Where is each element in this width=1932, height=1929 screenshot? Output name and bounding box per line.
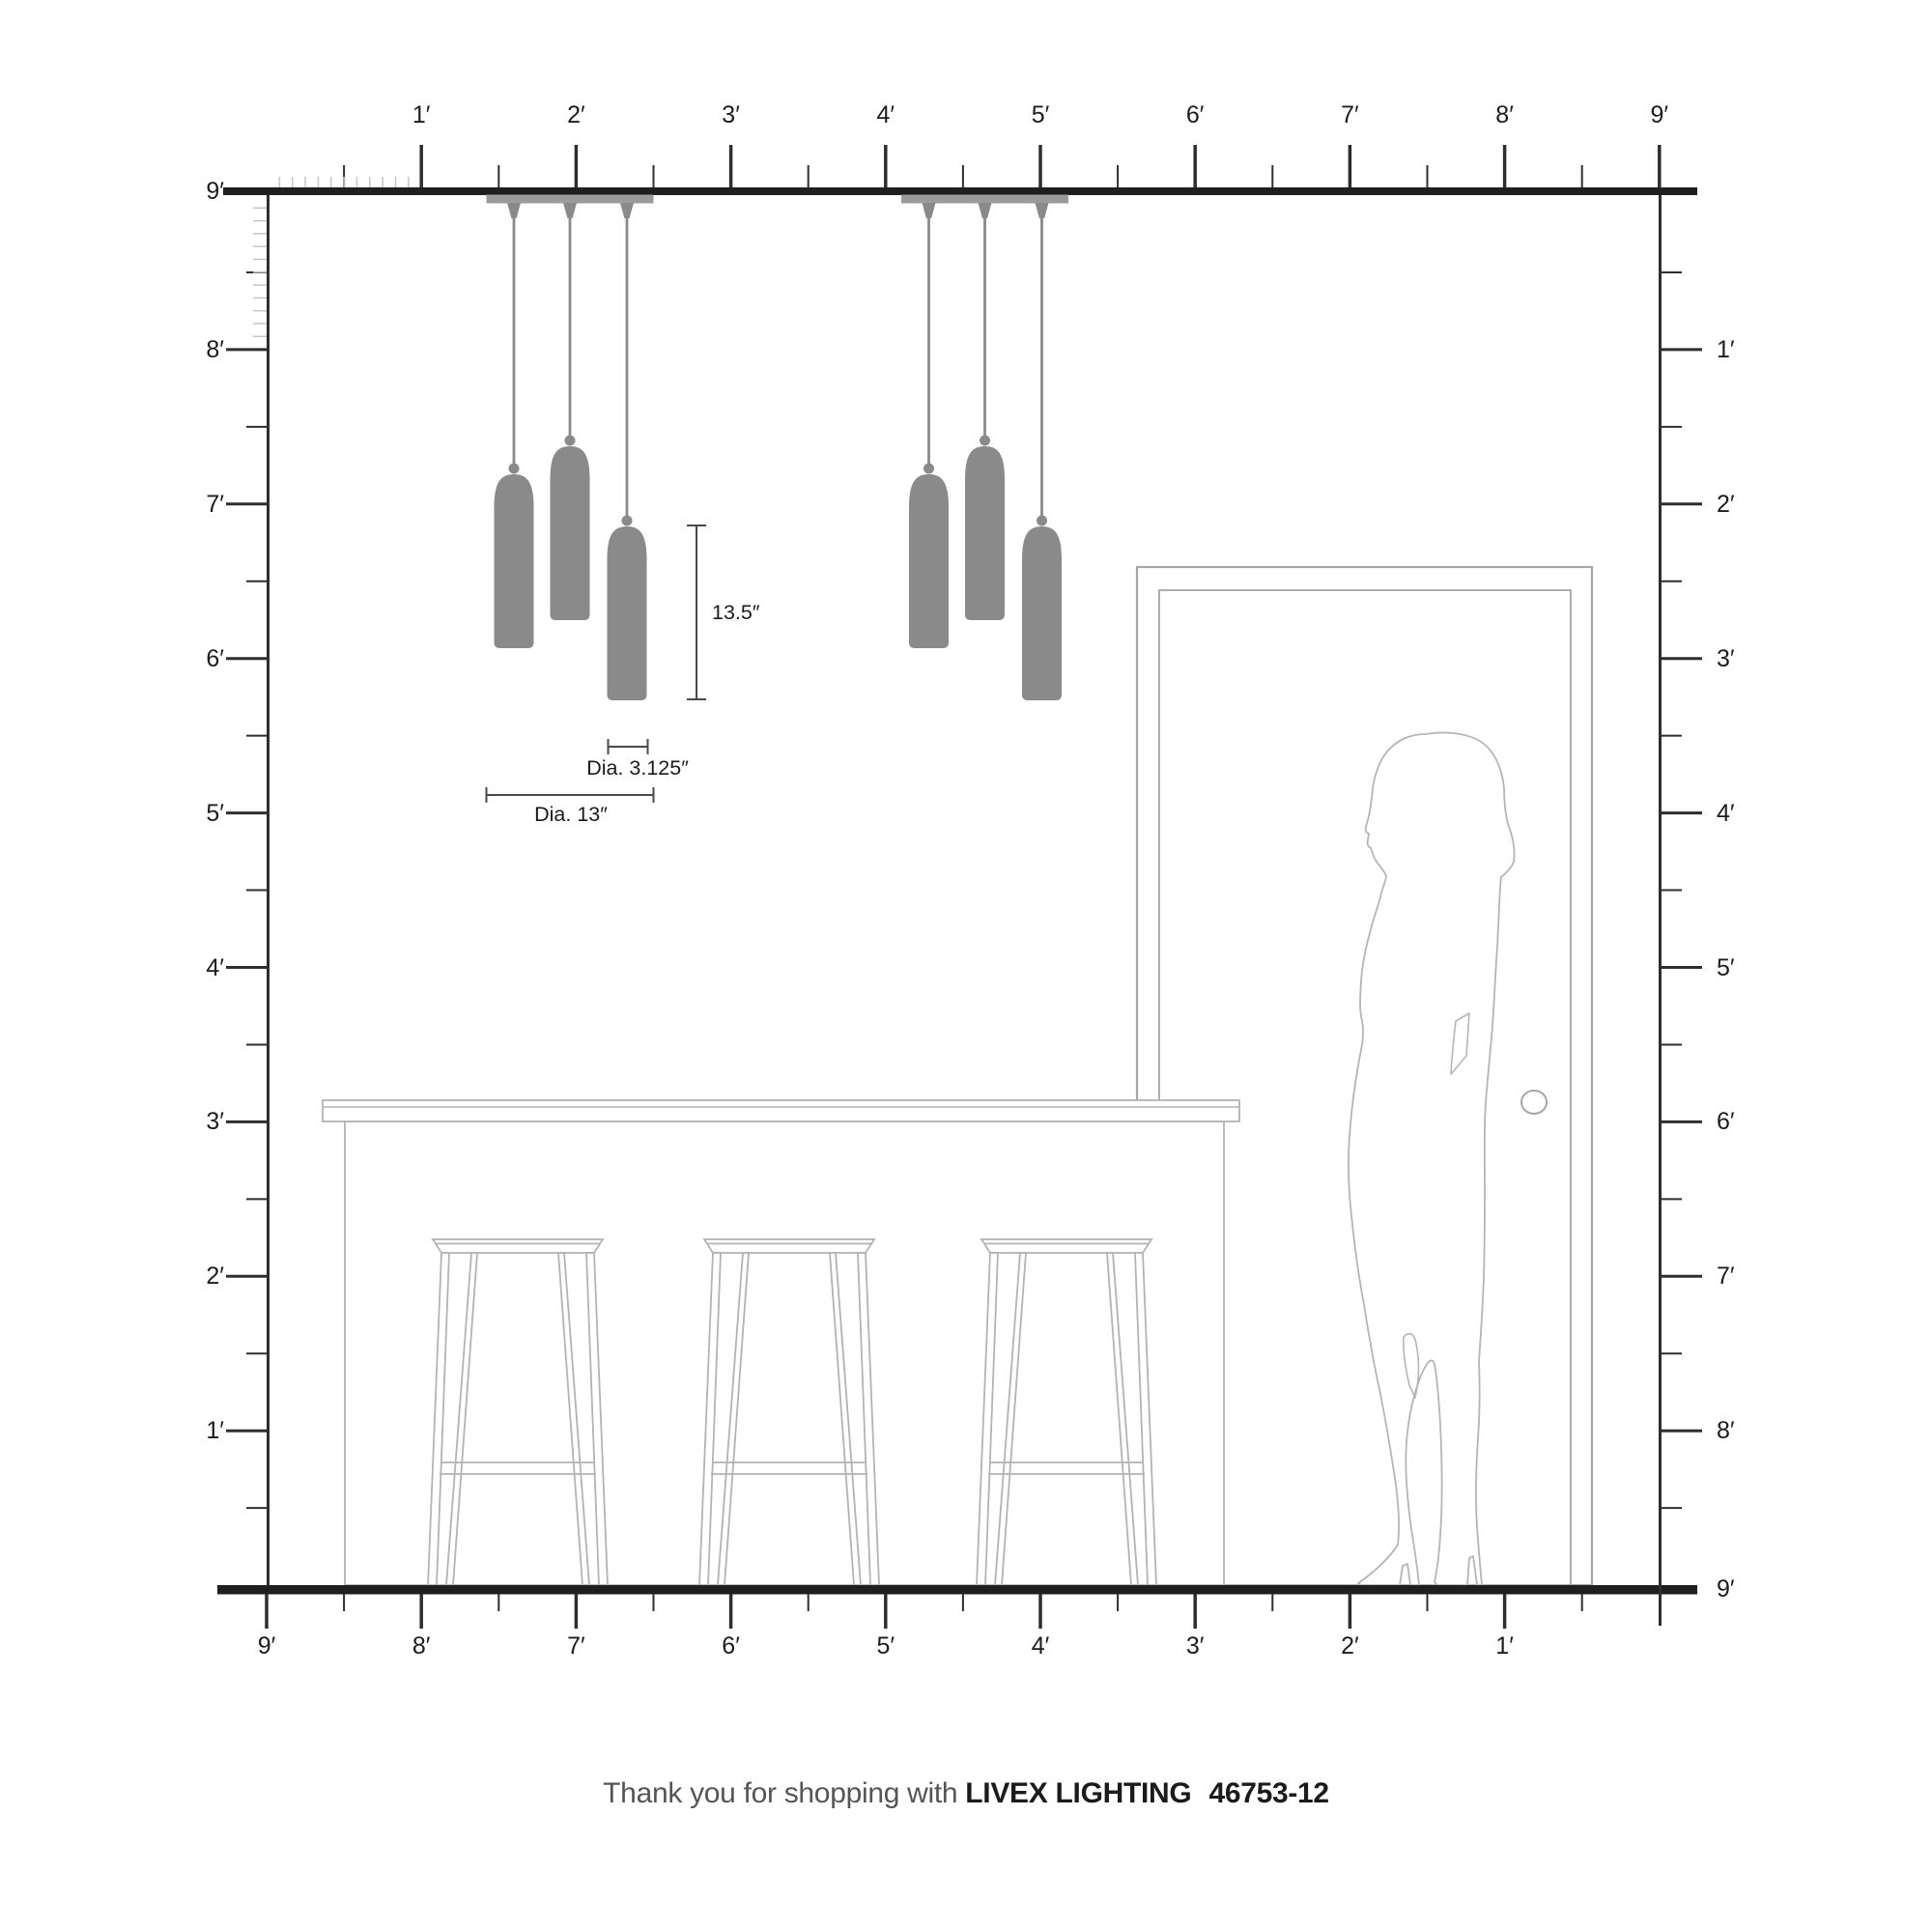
bottom-ruler-label: 1′ — [1495, 1631, 1514, 1660]
footer-brand: LIVEX LIGHTING — [965, 1777, 1191, 1809]
pendant-shade — [1022, 526, 1062, 700]
stool-seat — [433, 1239, 603, 1253]
left-wall-line — [267, 195, 270, 1585]
cord-knob — [509, 464, 520, 474]
left-ruler-label: 3′ — [206, 1107, 224, 1136]
stool-seat — [704, 1239, 874, 1253]
bottom-ruler-label: 6′ — [722, 1631, 740, 1660]
pendant-cord — [513, 217, 516, 467]
left-ruler-label: 9′ — [206, 177, 224, 206]
left-ruler-label: 2′ — [206, 1262, 224, 1291]
pendant-shade — [909, 474, 949, 648]
footer-text: Thank you for shopping withLIVEX LIGHTIN… — [0, 1777, 1932, 1810]
top-ruler-label: 8′ — [1495, 100, 1514, 129]
pendant-shade — [551, 446, 590, 620]
pendant-cluster — [901, 195, 1068, 701]
top-ruler-label: 3′ — [722, 100, 740, 129]
footer-model: 46753-12 — [1208, 1777, 1328, 1809]
pendant-cord — [983, 217, 986, 439]
pendant-shade — [495, 474, 534, 648]
top-ruler-label: 6′ — [1186, 100, 1205, 129]
left-ruler-label: 4′ — [206, 953, 224, 982]
pendant-shade — [608, 526, 647, 700]
cord-knob — [1037, 516, 1047, 526]
stool-seat — [981, 1239, 1151, 1253]
kitchen-island — [323, 1100, 1239, 1585]
right-ruler-label: 4′ — [1717, 799, 1735, 828]
bottom-ruler-label: 5′ — [877, 1631, 895, 1660]
cord-knob — [923, 464, 934, 474]
right-ruler-label: 2′ — [1717, 490, 1735, 519]
island-countertop — [323, 1100, 1239, 1121]
bottom-ruler-label: 9′ — [258, 1631, 276, 1660]
scale-diagram-canvas: 1′2′3′4′5′6′7′8′9′9′8′7′6′5′4′3′2′1′9′8′… — [0, 0, 1932, 1929]
floor-line — [217, 1585, 1697, 1595]
right-ruler-label: 1′ — [1717, 335, 1735, 364]
left-ruler-label: 7′ — [206, 490, 224, 519]
pendant-fixtures — [487, 195, 1069, 701]
island-base — [345, 1121, 1224, 1585]
top-ruler-label: 7′ — [1341, 100, 1359, 129]
cord-stem — [1036, 203, 1049, 218]
top-ruler-label: 1′ — [412, 100, 431, 129]
bottom-ruler-label: 4′ — [1032, 1631, 1050, 1660]
cord-stem — [923, 203, 936, 218]
left-ruler-label: 5′ — [206, 799, 224, 828]
pendant-height-label: 13.5″ — [712, 600, 759, 625]
cord-stem — [620, 203, 634, 218]
cord-knob — [980, 436, 990, 446]
scale-drawing — [0, 0, 1932, 1929]
canopy-diameter-label: Dia. 13″ — [534, 802, 608, 827]
door-knob — [1521, 1091, 1547, 1114]
top-ruler-label: 2′ — [567, 100, 585, 129]
cord-stem — [979, 203, 992, 218]
canopy-bar — [487, 195, 654, 204]
pendant-cord — [626, 217, 629, 519]
left-ruler-label: 1′ — [206, 1416, 224, 1445]
right-ruler-label: 7′ — [1717, 1262, 1735, 1291]
bottom-ruler-label: 2′ — [1341, 1631, 1359, 1660]
right-ruler-label: 9′ — [1717, 1574, 1735, 1603]
right-wall-line — [1659, 195, 1662, 1626]
shade-diameter-label: Dia. 3.125″ — [586, 755, 689, 780]
bottom-ruler-label: 7′ — [567, 1631, 585, 1660]
cord-stem — [563, 203, 577, 218]
cord-knob — [622, 516, 633, 526]
bottom-ruler-label: 3′ — [1186, 1631, 1205, 1660]
top-ruler-label: 9′ — [1651, 100, 1669, 129]
bottom-ruler-label: 8′ — [412, 1631, 431, 1660]
canopy-bar — [901, 195, 1068, 204]
cord-stem — [507, 203, 521, 218]
pendant-cord — [569, 217, 572, 439]
right-ruler-label: 5′ — [1717, 953, 1735, 982]
top-ruler-label: 4′ — [877, 100, 895, 129]
right-ruler-label: 8′ — [1717, 1416, 1735, 1445]
pendant-cord — [927, 217, 930, 467]
left-ruler-label: 6′ — [206, 644, 224, 673]
top-ruler-label: 5′ — [1032, 100, 1050, 129]
footer-thanks: Thank you for shopping with — [603, 1777, 957, 1809]
cord-knob — [565, 436, 576, 446]
left-ruler-label: 8′ — [206, 335, 224, 364]
pendant-cord — [1040, 217, 1043, 519]
right-ruler-label: 6′ — [1717, 1107, 1735, 1136]
pendant-cluster — [487, 195, 654, 701]
right-ruler-label: 3′ — [1717, 644, 1735, 673]
pendant-shade — [965, 446, 1005, 620]
ceiling-line — [223, 187, 1697, 195]
